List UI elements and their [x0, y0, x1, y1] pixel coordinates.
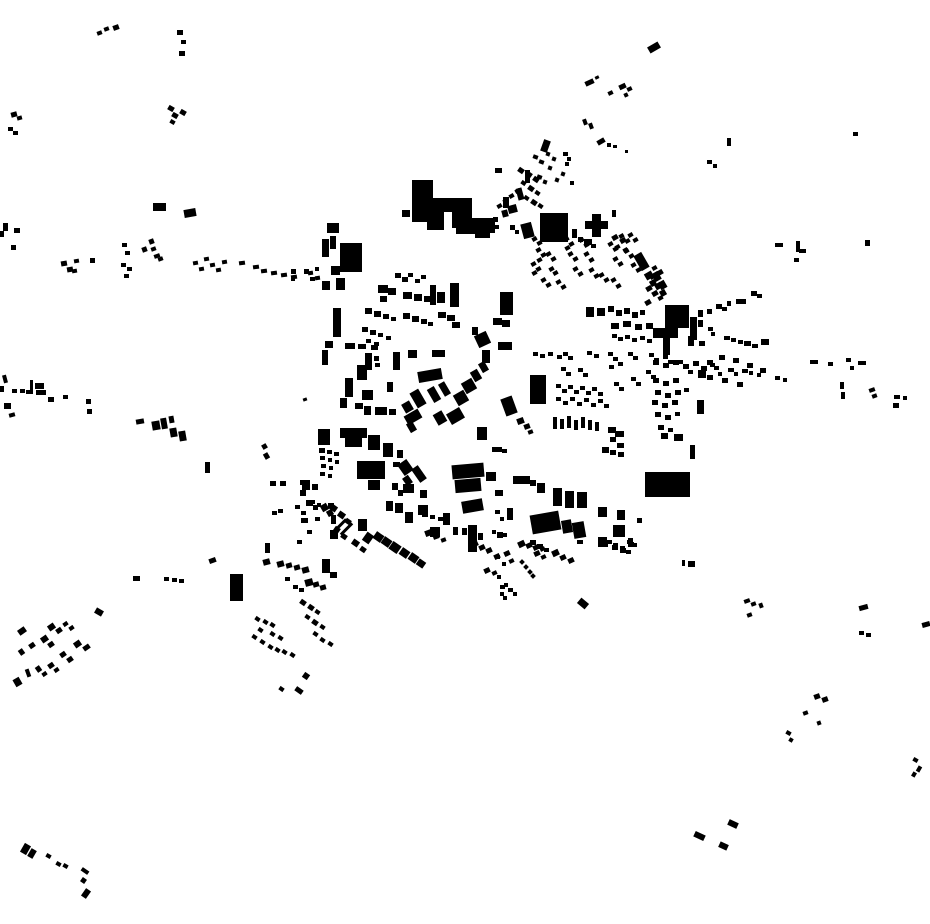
building-footprint	[545, 151, 550, 156]
building-footprint	[611, 323, 619, 329]
building-footprint	[179, 109, 187, 116]
building-footprint	[204, 257, 210, 262]
building-footprint	[300, 480, 307, 485]
building-footprint	[530, 261, 536, 267]
building-footprint	[665, 305, 689, 328]
building-footprint	[503, 533, 507, 537]
building-footprint	[577, 540, 583, 544]
building-footprint	[651, 375, 656, 379]
building-footprint	[230, 574, 243, 601]
building-footprint	[693, 361, 699, 366]
building-footprint	[652, 400, 658, 405]
building-footprint	[278, 509, 283, 513]
building-footprint	[500, 517, 504, 521]
building-footprint	[567, 157, 571, 161]
building-footprint	[550, 256, 556, 262]
building-footprint	[370, 330, 376, 335]
building-footprint	[840, 382, 844, 389]
building-footprint	[386, 501, 393, 511]
building-footprint	[598, 272, 604, 278]
building-footprint	[322, 559, 330, 573]
building-footprint	[566, 372, 571, 376]
building-footprint	[537, 203, 543, 209]
building-footprint	[598, 399, 603, 403]
building-footprint	[750, 601, 756, 606]
building-footprint	[603, 277, 609, 283]
building-footprint	[675, 390, 681, 395]
building-footprint	[179, 579, 184, 583]
building-footprint	[427, 386, 441, 403]
building-footprint	[334, 452, 339, 456]
building-footprint	[916, 765, 922, 772]
building-footprint	[567, 416, 571, 428]
building-footprint	[554, 177, 559, 182]
building-footprint	[72, 269, 78, 274]
building-footprint	[416, 558, 427, 568]
building-footprint	[483, 567, 491, 574]
building-footprint	[63, 395, 68, 399]
building-footprint	[493, 318, 502, 325]
building-footprint	[300, 490, 306, 496]
building-footprint	[707, 360, 713, 365]
building-footprint	[656, 269, 664, 276]
building-footprint	[646, 370, 651, 374]
building-footprint	[737, 382, 743, 387]
building-footprint	[707, 375, 713, 380]
building-footprint	[345, 378, 353, 397]
building-footprint	[261, 269, 267, 274]
building-footprint	[259, 639, 265, 645]
building-footprint	[402, 210, 410, 217]
building-footprint	[519, 559, 525, 565]
building-footprint	[682, 560, 685, 566]
building-footprint	[602, 447, 609, 453]
building-footprint	[568, 356, 573, 360]
building-footprint	[581, 417, 585, 428]
building-footprint	[668, 428, 673, 432]
building-footprint	[312, 484, 318, 490]
building-footprint	[311, 619, 319, 627]
building-footprint	[122, 243, 127, 247]
building-footprint	[14, 228, 20, 233]
building-footprint	[584, 398, 589, 402]
building-footprint	[614, 382, 619, 386]
building-footprint	[548, 352, 553, 356]
building-footprint	[495, 225, 499, 229]
building-footprint	[330, 572, 337, 578]
building-footprint	[711, 332, 715, 336]
building-footprint	[540, 354, 545, 358]
building-footprint	[492, 530, 496, 534]
building-footprint	[595, 75, 600, 79]
building-footprint	[386, 336, 391, 340]
building-footprint	[486, 472, 496, 481]
building-footprint	[563, 152, 568, 156]
building-footprint	[408, 273, 413, 277]
building-footprint	[307, 530, 312, 534]
building-footprint	[540, 554, 546, 560]
building-footprint	[424, 296, 430, 302]
building-footprint	[574, 420, 578, 430]
building-footprint	[408, 350, 417, 358]
building-footprint	[749, 371, 753, 375]
building-footprint	[646, 323, 653, 329]
building-footprint	[456, 222, 476, 234]
building-footprint	[73, 640, 82, 649]
building-footprint	[18, 648, 26, 656]
building-footprint	[340, 243, 362, 272]
building-footprint	[462, 528, 467, 535]
building-footprint	[645, 472, 690, 497]
building-footprint	[617, 261, 623, 267]
building-footprint	[619, 387, 624, 391]
building-footprint	[500, 592, 504, 596]
building-footprint	[816, 720, 821, 725]
building-footprint	[565, 491, 574, 508]
building-footprint	[437, 292, 445, 303]
building-footprint	[688, 370, 693, 374]
building-footprint	[395, 273, 401, 278]
building-footprint	[859, 604, 869, 611]
building-footprint	[222, 260, 228, 265]
building-footprint	[239, 261, 245, 266]
building-footprint	[317, 503, 321, 507]
building-footprint	[530, 573, 536, 579]
building-footprint	[269, 631, 275, 637]
building-footprint	[527, 185, 535, 193]
building-footprint	[708, 327, 713, 331]
building-footprint	[583, 251, 589, 257]
building-footprint	[427, 212, 444, 230]
building-footprint	[322, 239, 329, 257]
building-footprint	[598, 507, 607, 517]
building-footprint	[640, 310, 645, 315]
building-footprint	[365, 308, 372, 314]
building-footprint	[469, 540, 479, 549]
building-footprint	[291, 277, 295, 281]
building-footprint	[588, 267, 594, 273]
building-footprint	[724, 336, 730, 340]
building-footprint	[269, 622, 275, 628]
building-footprint	[302, 672, 310, 680]
building-footprint	[498, 342, 512, 350]
building-footprint	[153, 203, 166, 211]
building-footprint	[477, 427, 487, 440]
building-footprint	[513, 592, 517, 596]
building-footprint	[438, 312, 446, 318]
building-footprint	[315, 267, 319, 271]
building-footprint	[627, 232, 633, 238]
building-footprint	[315, 276, 321, 281]
building-footprint	[775, 243, 783, 247]
building-footprint	[626, 86, 632, 92]
building-footprint	[262, 619, 268, 625]
building-footprint	[415, 279, 420, 283]
building-footprint	[74, 259, 80, 264]
building-footprint	[11, 245, 16, 250]
building-footprint	[577, 492, 587, 508]
building-footprint	[647, 339, 652, 343]
building-footprint	[552, 270, 558, 276]
building-footprint	[141, 246, 147, 252]
building-footprint	[312, 581, 319, 587]
building-footprint	[893, 403, 899, 408]
building-footprint	[178, 430, 187, 441]
building-footprint	[744, 341, 751, 346]
building-footprint	[389, 409, 396, 415]
building-footprint	[330, 236, 336, 249]
building-footprint	[742, 369, 748, 373]
building-footprint	[17, 626, 27, 636]
building-footprint	[713, 164, 717, 168]
building-footprint	[124, 274, 129, 278]
building-footprint	[391, 317, 396, 321]
building-footprint	[663, 355, 668, 359]
building-footprint	[362, 327, 368, 332]
building-footprint	[557, 355, 562, 359]
building-footprint	[561, 367, 566, 371]
building-footprint	[586, 307, 594, 317]
building-footprint	[752, 344, 758, 348]
building-footprint	[560, 171, 565, 176]
building-footprint	[422, 512, 428, 517]
building-footprint	[62, 863, 68, 869]
building-footprint	[375, 363, 380, 367]
building-footprint	[285, 562, 292, 568]
building-footprint	[626, 550, 631, 554]
building-footprint	[45, 853, 51, 859]
building-footprint	[378, 333, 383, 337]
building-footprint	[503, 596, 507, 600]
building-footprint	[495, 490, 503, 496]
building-footprint	[254, 616, 260, 622]
building-footprint	[358, 344, 366, 349]
building-footprint	[540, 139, 551, 153]
building-footprint	[614, 244, 620, 250]
building-footprint	[355, 403, 363, 409]
building-footprint	[35, 665, 43, 673]
building-footprint	[722, 307, 727, 311]
building-footprint	[127, 267, 132, 271]
building-footprint	[333, 308, 341, 337]
building-footprint	[500, 395, 517, 416]
building-footprint	[495, 555, 500, 559]
building-footprint	[507, 204, 518, 214]
building-footprint	[609, 365, 614, 369]
building-footprint	[291, 269, 296, 274]
building-footprint	[270, 481, 276, 486]
building-footprint	[802, 710, 808, 715]
building-footprint	[911, 771, 917, 777]
building-footprint	[414, 294, 422, 301]
building-footprint	[314, 609, 320, 615]
building-footprint	[624, 308, 630, 314]
building-footprint	[440, 537, 446, 542]
building-footprint	[331, 515, 336, 524]
building-footprint	[556, 384, 561, 388]
building-footprint	[733, 358, 739, 363]
building-footprint	[714, 366, 719, 370]
building-footprint	[785, 730, 791, 736]
building-footprint	[406, 421, 417, 433]
building-footprint	[319, 448, 325, 453]
building-footprint	[299, 599, 307, 607]
building-footprint	[618, 452, 624, 457]
building-footprint	[30, 380, 33, 394]
building-footprint	[417, 368, 443, 383]
building-footprint	[559, 554, 567, 561]
building-footprint	[20, 389, 25, 393]
building-footprint	[551, 156, 556, 161]
building-footprint	[628, 542, 634, 547]
building-footprint	[357, 461, 385, 479]
building-footprint	[794, 258, 799, 262]
building-footprint	[623, 321, 631, 327]
building-footprint	[578, 368, 583, 372]
building-footprint	[136, 418, 145, 424]
building-footprint	[647, 41, 661, 53]
building-footprint	[799, 249, 806, 253]
building-footprint	[392, 483, 398, 490]
building-footprint	[523, 564, 529, 570]
building-footprint	[297, 540, 302, 544]
building-footprint	[757, 294, 762, 298]
building-footprint	[734, 372, 738, 376]
building-footprint	[668, 360, 673, 364]
building-footprint	[760, 368, 766, 373]
building-footprint	[35, 383, 44, 389]
building-footprint	[485, 547, 493, 554]
building-footprint	[432, 350, 445, 357]
building-footprint	[508, 558, 514, 564]
building-footprint	[657, 295, 663, 301]
building-footprint	[612, 334, 617, 338]
building-footprint	[655, 412, 661, 417]
building-footprint	[432, 533, 439, 540]
building-footprint	[618, 362, 623, 366]
building-footprint	[613, 357, 618, 361]
building-footprint	[82, 643, 91, 651]
building-footprint	[412, 316, 419, 322]
building-footprint	[340, 398, 347, 408]
building-footprint	[277, 635, 283, 641]
building-footprint	[285, 577, 290, 581]
building-footprint	[265, 543, 270, 553]
building-footprint	[261, 443, 268, 450]
building-footprint	[257, 627, 263, 633]
building-footprint	[446, 407, 465, 425]
building-footprint	[12, 389, 17, 393]
building-footprint	[649, 353, 654, 357]
building-footprint	[570, 181, 574, 185]
building-footprint	[278, 686, 284, 692]
building-footprint	[402, 277, 408, 282]
building-footprint	[433, 410, 448, 425]
building-footprint	[362, 390, 373, 400]
building-footprint	[199, 267, 205, 272]
building-footprint	[594, 354, 599, 358]
building-footprint	[640, 336, 645, 340]
building-footprint	[181, 40, 186, 44]
building-footprint	[610, 450, 616, 455]
building-footprint	[48, 397, 54, 402]
building-footprint	[403, 484, 414, 493]
building-footprint	[618, 337, 623, 341]
building-footprint	[502, 320, 510, 327]
building-footprint	[727, 138, 731, 146]
building-footprint	[493, 217, 498, 222]
building-footprint	[596, 137, 605, 145]
building-footprint	[602, 542, 608, 547]
building-footprint	[560, 419, 564, 429]
building-footprint	[562, 389, 567, 393]
building-footprint	[567, 251, 573, 257]
building-footprint	[430, 285, 436, 305]
building-footprint	[388, 288, 396, 295]
building-footprint	[572, 266, 578, 272]
building-footprint	[320, 472, 325, 476]
building-footprint	[359, 546, 367, 554]
building-footprint	[274, 647, 280, 653]
building-footprint	[607, 143, 611, 147]
building-footprint	[125, 251, 130, 255]
building-footprint	[697, 400, 704, 414]
building-footprint	[289, 652, 295, 658]
building-footprint	[707, 160, 712, 164]
building-footprint	[319, 637, 325, 643]
building-footprint	[351, 539, 360, 548]
building-footprint	[447, 315, 455, 321]
building-footprint	[322, 281, 330, 290]
building-footprint	[171, 112, 179, 119]
building-footprint	[13, 131, 18, 135]
building-footprint	[411, 465, 427, 483]
building-footprint	[321, 464, 326, 468]
building-footprint	[428, 322, 433, 326]
building-footprint	[495, 510, 500, 514]
building-footprint	[560, 284, 566, 290]
building-footprint	[502, 449, 507, 453]
building-footprint	[561, 519, 573, 534]
building-footprint	[563, 401, 568, 405]
building-footprint	[319, 584, 326, 590]
building-footprint	[193, 261, 199, 266]
building-footprint	[28, 642, 36, 650]
building-footprint	[96, 30, 102, 35]
building-footprint	[68, 625, 74, 631]
building-footprint	[743, 598, 750, 604]
building-footprint	[25, 669, 31, 678]
building-footprint	[853, 132, 858, 136]
building-footprint	[586, 391, 591, 395]
building-footprint	[698, 370, 706, 378]
building-footprint	[542, 179, 547, 184]
building-footprint	[553, 488, 562, 506]
building-footprint	[866, 633, 871, 637]
building-footprint	[564, 245, 570, 251]
building-footprint	[678, 360, 683, 364]
building-footprint	[331, 266, 340, 275]
building-footprint	[148, 238, 154, 244]
building-footprint	[635, 324, 642, 330]
building-footprint	[358, 519, 367, 531]
building-footprint	[587, 351, 592, 355]
building-footprint	[80, 877, 87, 884]
building-footprint	[775, 376, 780, 380]
building-footprint	[164, 577, 169, 581]
building-footprint	[301, 518, 308, 523]
building-footprint	[722, 378, 728, 383]
